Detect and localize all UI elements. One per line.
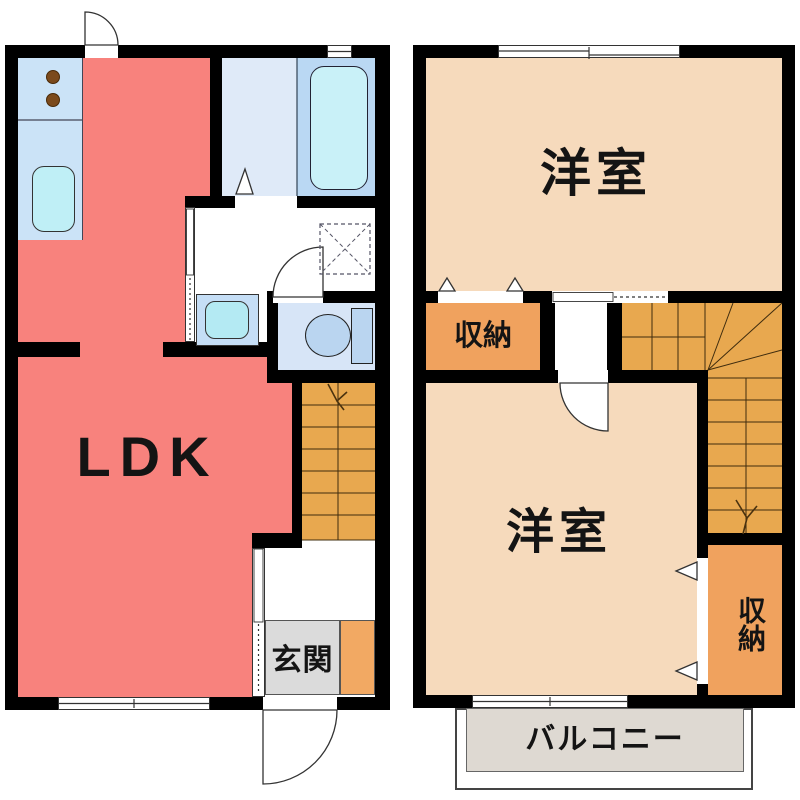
room-label-western-upper: 洋室 bbox=[496, 147, 696, 201]
room-label-ldk: LDK bbox=[60, 428, 235, 487]
sliding-window-icon bbox=[472, 695, 628, 708]
door-sill bbox=[558, 370, 608, 383]
entry-hallway bbox=[265, 540, 375, 620]
door-swing-icon bbox=[85, 12, 118, 45]
room-label-western-lower: 洋室 bbox=[459, 508, 659, 558]
wall-segment bbox=[18, 342, 80, 357]
shoe-cabinet bbox=[340, 620, 375, 695]
bathtub-icon bbox=[310, 66, 368, 190]
sliding-door-icon bbox=[552, 291, 668, 303]
toilet-tank bbox=[351, 308, 373, 364]
staircase-2f-right-run bbox=[708, 370, 782, 533]
floor-plan: LDK 玄関 洋室 洋室 収納 収納 バルコニー bbox=[0, 0, 800, 800]
wall-segment bbox=[375, 45, 390, 710]
staircase-1f bbox=[302, 383, 375, 540]
room-label-closet-lower: 収納 bbox=[727, 583, 765, 665]
room-bathroom-floor bbox=[222, 58, 297, 196]
door-sill bbox=[235, 196, 297, 208]
room-ldk bbox=[18, 357, 302, 383]
toilet-icon bbox=[305, 314, 351, 357]
stove-burner-icon bbox=[46, 93, 60, 107]
entrance-door-swing-icon bbox=[263, 710, 337, 784]
closet-door-sill bbox=[438, 291, 523, 303]
room-label-closet-upper: 収納 bbox=[426, 321, 540, 351]
wall-segment bbox=[210, 58, 222, 208]
stove-burner-icon bbox=[46, 70, 60, 84]
room-label-balcony: バルコニー bbox=[480, 724, 730, 756]
sliding-window-icon bbox=[58, 697, 210, 710]
room-label-genkan: 玄関 bbox=[263, 645, 342, 677]
sliding-window-icon bbox=[498, 45, 680, 58]
vanity-basin-icon bbox=[205, 301, 249, 339]
room-ldk bbox=[82, 58, 222, 207]
wall-segment bbox=[292, 383, 302, 548]
wall-segment bbox=[413, 45, 426, 708]
door-opening bbox=[273, 291, 323, 303]
closet-door-sill bbox=[697, 558, 708, 684]
stair-landing bbox=[555, 303, 607, 370]
room-ldk bbox=[18, 548, 265, 697]
wall-segment bbox=[782, 45, 795, 708]
wall-segment bbox=[540, 303, 555, 370]
wall-segment bbox=[607, 303, 622, 370]
door-opening bbox=[263, 697, 337, 710]
wall-segment bbox=[267, 370, 377, 383]
sliding-door-icon bbox=[185, 207, 195, 342]
wall-segment bbox=[5, 45, 18, 710]
sliding-window-icon bbox=[327, 45, 352, 58]
kitchen-sink-icon bbox=[32, 166, 75, 232]
wall-segment bbox=[252, 533, 302, 548]
door-opening bbox=[85, 45, 118, 58]
staircase-2f-top-run bbox=[622, 303, 782, 370]
wall-segment bbox=[697, 533, 782, 545]
